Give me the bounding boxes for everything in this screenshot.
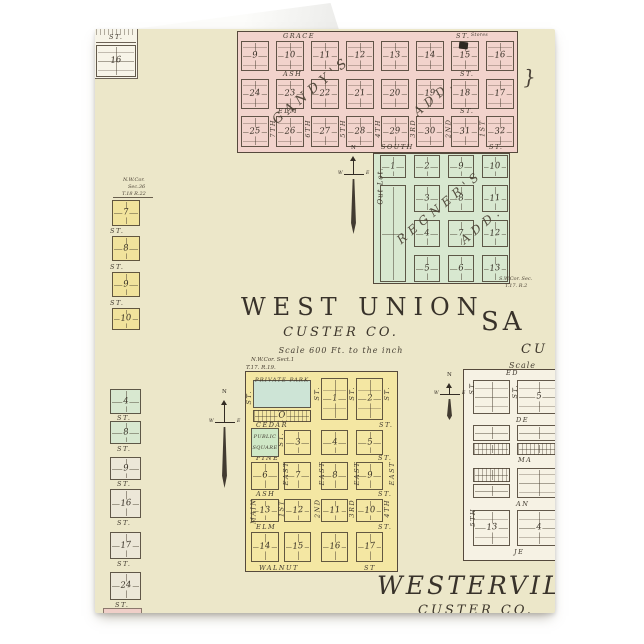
compass-east-label: E bbox=[462, 392, 465, 397]
street-name-vertical: 4TH bbox=[375, 119, 382, 138]
street-name: DE bbox=[516, 417, 529, 424]
block-number: 3 bbox=[423, 194, 431, 203]
town-block: 31 bbox=[451, 116, 479, 147]
street-name: WALNUT bbox=[259, 565, 299, 572]
town-block: 17 bbox=[356, 532, 383, 562]
town-block bbox=[517, 425, 555, 441]
compass-shaft bbox=[449, 385, 450, 394]
street-abbrev-vertical: ST. bbox=[469, 380, 476, 394]
block-number: 10 bbox=[488, 161, 502, 171]
corner-note-regners-1: S.W.Cor. Sec. bbox=[499, 276, 532, 282]
street-name: ELM bbox=[278, 108, 298, 115]
town-block: 1 bbox=[321, 378, 348, 420]
street-abbrev: ST. bbox=[378, 524, 392, 531]
compass-north-label: N bbox=[222, 390, 227, 396]
street-abbrev: ST. bbox=[378, 491, 392, 498]
street-abbrev: ST. bbox=[489, 144, 503, 151]
block-number: 22 bbox=[318, 89, 332, 99]
town-block: 10 bbox=[482, 155, 508, 178]
street-abbrev: ST. bbox=[460, 71, 474, 78]
corner-note-left: Sec.36 bbox=[128, 184, 145, 190]
town-title-west-union: WEST UNION bbox=[241, 295, 441, 319]
greeting-card-front: 9101112131415162423222120191817252627282… bbox=[95, 29, 555, 613]
town-block: 2 bbox=[356, 378, 383, 420]
compass-north-label: N bbox=[351, 146, 356, 152]
street-name-vertical: 1ST bbox=[278, 500, 285, 517]
block-number: 6 bbox=[457, 264, 465, 273]
compass-north-label: N bbox=[447, 373, 452, 379]
town-block: 13 bbox=[473, 510, 510, 546]
pink-plat-sliver bbox=[103, 608, 142, 613]
compass-west-label: W bbox=[209, 420, 214, 425]
street-name-vertical: 3RD bbox=[410, 119, 417, 138]
block-number: 4 bbox=[121, 397, 129, 406]
section-line bbox=[113, 197, 153, 198]
town-block: 12 bbox=[482, 220, 508, 247]
title-westerville: WESTERVILLE CUSTER CO. bbox=[377, 573, 555, 598]
town-block bbox=[473, 425, 510, 441]
block-number: 6 bbox=[261, 471, 269, 480]
block-number: 13 bbox=[258, 505, 272, 515]
town-block: 8 bbox=[110, 421, 141, 444]
town-block: 15 bbox=[284, 532, 311, 562]
block-number: 23 bbox=[283, 89, 297, 99]
block-number: 3 bbox=[293, 438, 301, 447]
street-abbrev: ST. bbox=[379, 422, 393, 429]
block-number: 32 bbox=[493, 126, 507, 136]
block-number: 24 bbox=[119, 581, 133, 591]
block-number: 20 bbox=[388, 89, 402, 99]
compass-crossbar bbox=[344, 174, 364, 175]
corner-note-westunion-2: T.17. R.19. bbox=[246, 365, 276, 372]
town-block bbox=[517, 468, 555, 498]
compass-crossbar bbox=[215, 422, 235, 423]
block-number: 16 bbox=[493, 51, 507, 61]
street-name: AN bbox=[516, 501, 529, 508]
street-name-vertical: 2ND bbox=[315, 498, 322, 518]
plat-gandys-addition: 9101112131415162423222120191817252627282… bbox=[237, 31, 518, 153]
street-abbrev: ST. bbox=[109, 34, 123, 41]
stores-icon bbox=[459, 42, 469, 50]
block-number: 17 bbox=[493, 89, 507, 99]
block-number: 21 bbox=[353, 89, 367, 99]
plat-line bbox=[96, 42, 136, 43]
compass-rose-regners: NWE bbox=[343, 147, 365, 235]
card-back-fold bbox=[127, 3, 339, 30]
compass-tail bbox=[446, 399, 453, 420]
private-park: PRIVATE PARK bbox=[253, 380, 311, 408]
out-lot-label: Out Lot. bbox=[378, 167, 385, 204]
street-abbrev: ST. bbox=[460, 108, 474, 115]
compass-rose-west-union: NWE bbox=[214, 391, 236, 489]
county-label: CUSTER CO. bbox=[241, 326, 441, 339]
street-name-vertical: 7TH bbox=[270, 119, 277, 138]
street-abbrev: ST. bbox=[117, 520, 131, 527]
block-number: 24 bbox=[248, 89, 262, 99]
compass-west-label: W bbox=[338, 172, 343, 177]
town-block: 20 bbox=[381, 79, 409, 109]
compass-tail bbox=[350, 179, 357, 234]
street-abbrev: ST. bbox=[117, 415, 131, 422]
block-number: 26 bbox=[283, 126, 297, 136]
block-number: 14 bbox=[423, 51, 437, 61]
public-square-label: SQUARE bbox=[252, 446, 278, 451]
block-number: 11 bbox=[488, 193, 502, 203]
block-number: 13 bbox=[485, 523, 499, 533]
town-block: 16 bbox=[321, 532, 348, 562]
street-abbrev: ST. bbox=[110, 300, 124, 307]
block-number: 14 bbox=[258, 542, 272, 552]
street-name-vertical: 2ND bbox=[446, 118, 453, 138]
block-number: 29 bbox=[388, 126, 402, 136]
street-abbrev: ST. bbox=[110, 264, 124, 271]
street-name: ASH bbox=[256, 491, 275, 498]
town-block: 8 bbox=[112, 236, 140, 261]
town-block: 6 bbox=[448, 255, 474, 282]
compass-tail bbox=[221, 427, 228, 488]
street-name: SOUTH bbox=[381, 144, 414, 151]
street-name-vertical: EAST bbox=[354, 461, 361, 485]
town-block: 5 bbox=[356, 430, 383, 455]
brace-mark: } bbox=[522, 67, 536, 88]
town-block: 10 bbox=[276, 41, 304, 71]
plat-west-union-town: 1234567891312111014151617PRIVATE PARKOPU… bbox=[245, 371, 398, 572]
town-block: 11 bbox=[482, 185, 508, 212]
block-number: 15 bbox=[291, 542, 305, 552]
compass-east-label: E bbox=[237, 420, 240, 425]
town-block: 16 bbox=[486, 41, 514, 71]
street-abbrev: ST. bbox=[456, 33, 470, 40]
street-name-vertical: EAST bbox=[319, 461, 326, 485]
town-block: 23 bbox=[276, 79, 304, 109]
town-block: 12 bbox=[346, 41, 374, 71]
block-number: 16 bbox=[119, 498, 133, 508]
block-number: 4 bbox=[423, 229, 431, 238]
street-name-vertical: MAIN bbox=[251, 498, 258, 524]
street-name-vertical: EAST bbox=[283, 461, 290, 485]
street-abbrev: ST bbox=[364, 565, 376, 572]
town-block: 9 bbox=[448, 155, 474, 178]
block-number: 9 bbox=[365, 471, 373, 480]
town-block: 3 bbox=[284, 430, 311, 455]
block-number: 4 bbox=[535, 523, 543, 532]
street-name-vertical: EAST bbox=[389, 461, 396, 485]
block-number: 12 bbox=[488, 228, 502, 238]
town-block: 14 bbox=[251, 532, 279, 562]
town-block: 4 bbox=[414, 220, 440, 247]
block-number: 15 bbox=[458, 51, 472, 61]
block-number: 1 bbox=[330, 394, 338, 403]
stores-note: Stores bbox=[471, 34, 488, 39]
out-lot-block: Out Lot. bbox=[380, 185, 406, 282]
town-block: 30 bbox=[416, 116, 444, 147]
block-number: 13 bbox=[488, 263, 502, 273]
corner-note-westunion-1: N.W.Cor. Sect.1 bbox=[251, 357, 294, 364]
block-number: 27 bbox=[318, 126, 332, 136]
block-number: 10 bbox=[363, 505, 377, 515]
town-block: 26 bbox=[276, 116, 304, 147]
block-number: 7 bbox=[457, 229, 465, 238]
street-name: ED bbox=[506, 370, 519, 377]
street-abbrev-vertical: ST. bbox=[246, 390, 253, 404]
block-number: 7 bbox=[293, 471, 301, 480]
block-number: 17 bbox=[119, 540, 133, 550]
street-name-vertical: 3RD bbox=[349, 499, 356, 518]
town-block: 24 bbox=[110, 572, 141, 600]
town-block: 27 bbox=[311, 116, 339, 147]
title-west-union: WEST UNION CUSTER CO. Scale 600 Ft. to t… bbox=[241, 295, 441, 355]
block-number: 16 bbox=[328, 542, 342, 552]
street-name: JE bbox=[514, 549, 524, 556]
town-block: 6 bbox=[251, 462, 279, 490]
block-number: 13 bbox=[388, 51, 402, 61]
town-block: 8 bbox=[448, 185, 474, 212]
block-number: 2 bbox=[365, 394, 373, 403]
town-block: 9 bbox=[241, 41, 269, 71]
plat-topleft-fragment: ST.16 bbox=[95, 29, 138, 79]
plat-regners-addition: 12910381147125613Out Lot.REGNER'SADD. bbox=[373, 153, 510, 284]
street-name-vertical: 6TH bbox=[305, 119, 312, 138]
town-block: 16 bbox=[110, 489, 141, 518]
block-number: 9 bbox=[251, 51, 259, 60]
block-number: 7 bbox=[122, 208, 130, 217]
block-number: 9 bbox=[121, 464, 129, 473]
corner-note-left: N.W.Cor. bbox=[123, 177, 145, 183]
block-number: 9 bbox=[457, 162, 465, 171]
block-number: 2 bbox=[423, 162, 431, 171]
block-number: 5 bbox=[365, 438, 373, 447]
town-title-westerville: WESTERVILLE bbox=[377, 573, 555, 598]
street-abbrev: ST. bbox=[110, 228, 124, 235]
compass-shaft bbox=[353, 158, 354, 174]
town-block: 13 bbox=[381, 41, 409, 71]
street-abbrev-vertical: ST. bbox=[349, 386, 356, 400]
corner-note-regners-2: T.17. R.2 bbox=[505, 283, 527, 289]
block-number: 16 bbox=[109, 56, 123, 66]
compass-west-label: W bbox=[434, 392, 439, 397]
town-block: 10 bbox=[112, 308, 140, 330]
street-name-vertical: 5TH bbox=[340, 119, 347, 138]
county-label: CUSTER CO. bbox=[418, 604, 534, 613]
street-name-vertical: 4TH bbox=[384, 499, 391, 518]
town-block: 4 bbox=[321, 430, 348, 455]
town-block: 12 bbox=[284, 499, 311, 522]
block-number: 17 bbox=[363, 542, 377, 552]
town-title-sargent: SA bbox=[481, 309, 526, 335]
block-number: 10 bbox=[119, 314, 133, 324]
block-number: 8 bbox=[122, 244, 130, 253]
block-number: 1 bbox=[389, 162, 397, 171]
town-block: 9 bbox=[112, 272, 140, 297]
block-number: 31 bbox=[458, 126, 472, 136]
lot-strip bbox=[517, 443, 555, 455]
town-block: 21 bbox=[346, 79, 374, 109]
street-abbrev: ST. bbox=[117, 561, 131, 568]
street-abbrev-vertical: ST. bbox=[384, 386, 391, 400]
town-block: 5 bbox=[517, 380, 555, 414]
street-name: MA bbox=[518, 457, 532, 464]
street-name: GRACE bbox=[283, 33, 315, 40]
block-number: 10 bbox=[283, 51, 297, 61]
town-block bbox=[473, 380, 510, 414]
block-number: 25 bbox=[248, 126, 262, 136]
scale-label: Scale 600 Ft. to the inch bbox=[241, 347, 441, 355]
town-block: 14 bbox=[416, 41, 444, 71]
block-number: 12 bbox=[353, 51, 367, 61]
block-number: O bbox=[277, 411, 287, 420]
public-square: PUBLICSQUARE bbox=[251, 428, 279, 457]
block-number: 8 bbox=[121, 428, 129, 437]
street-abbrev-vertical: ST. bbox=[512, 384, 519, 398]
lot-strip bbox=[473, 468, 510, 482]
town-block: 3 bbox=[414, 185, 440, 212]
town-block: 9 bbox=[110, 457, 141, 480]
street-abbrev: ST. bbox=[117, 446, 131, 453]
scale-label: Scale bbox=[509, 362, 536, 370]
block-number: 30 bbox=[423, 126, 437, 136]
block-number: 5 bbox=[535, 392, 543, 401]
street-name: ELM bbox=[256, 524, 276, 531]
town-block bbox=[473, 484, 510, 498]
block-number: 4 bbox=[330, 438, 338, 447]
private-park-label: PRIVATE PARK bbox=[254, 378, 310, 384]
public-square-label: PUBLIC bbox=[252, 435, 278, 440]
lot-strip bbox=[473, 443, 510, 455]
block-number: 12 bbox=[291, 505, 305, 515]
town-block: 7 bbox=[112, 200, 140, 226]
plat-sargent-partial: 5134EDDEMAANJEST.ST.5TH bbox=[463, 369, 555, 561]
town-block: 24 bbox=[241, 79, 269, 109]
town-block: 28 bbox=[346, 116, 374, 147]
compass-shaft bbox=[224, 402, 225, 422]
block-number: 18 bbox=[458, 89, 472, 99]
town-block: 19 bbox=[416, 79, 444, 109]
compass-crossbar bbox=[440, 394, 460, 395]
town-block: 4 bbox=[517, 510, 555, 546]
county-label: CU bbox=[521, 343, 548, 356]
town-block: 17 bbox=[486, 79, 514, 109]
block-number: 28 bbox=[353, 126, 367, 136]
town-block: 17 bbox=[110, 532, 141, 559]
street-abbrev-vertical: ST. bbox=[314, 386, 321, 400]
block-number: 5 bbox=[423, 264, 431, 273]
town-block: 11 bbox=[321, 499, 348, 522]
town-block: 10 bbox=[356, 499, 383, 522]
compass-rose-sargent: NWE bbox=[439, 374, 461, 421]
town-block: 7 bbox=[448, 220, 474, 247]
block-number: 11 bbox=[318, 51, 332, 61]
town-block: 2 bbox=[414, 155, 440, 178]
product-photo-stage: 9101112131415162423222120191817252627282… bbox=[0, 0, 644, 644]
block-number: 11 bbox=[328, 505, 342, 515]
town-block: 22 bbox=[311, 79, 339, 109]
town-block: 25 bbox=[241, 116, 269, 147]
title-sargent-partial: SA CU Scale bbox=[481, 309, 526, 335]
town-block: 5 bbox=[414, 255, 440, 282]
town-block: 4 bbox=[110, 389, 141, 414]
town-block: 18 bbox=[451, 79, 479, 109]
street-abbrev: ST. bbox=[117, 481, 131, 488]
town-block: 16 bbox=[96, 45, 136, 77]
block-number: 9 bbox=[122, 280, 130, 289]
street-name: ASH bbox=[283, 71, 302, 78]
block-number: 8 bbox=[457, 194, 465, 203]
block-number: 19 bbox=[423, 89, 437, 99]
compass-east-label: E bbox=[366, 172, 369, 177]
street-name-vertical: 1ST bbox=[479, 120, 486, 137]
street-name-vertical: 5TH bbox=[470, 508, 477, 527]
block-number: 8 bbox=[330, 471, 338, 480]
town-block: 11 bbox=[311, 41, 339, 71]
